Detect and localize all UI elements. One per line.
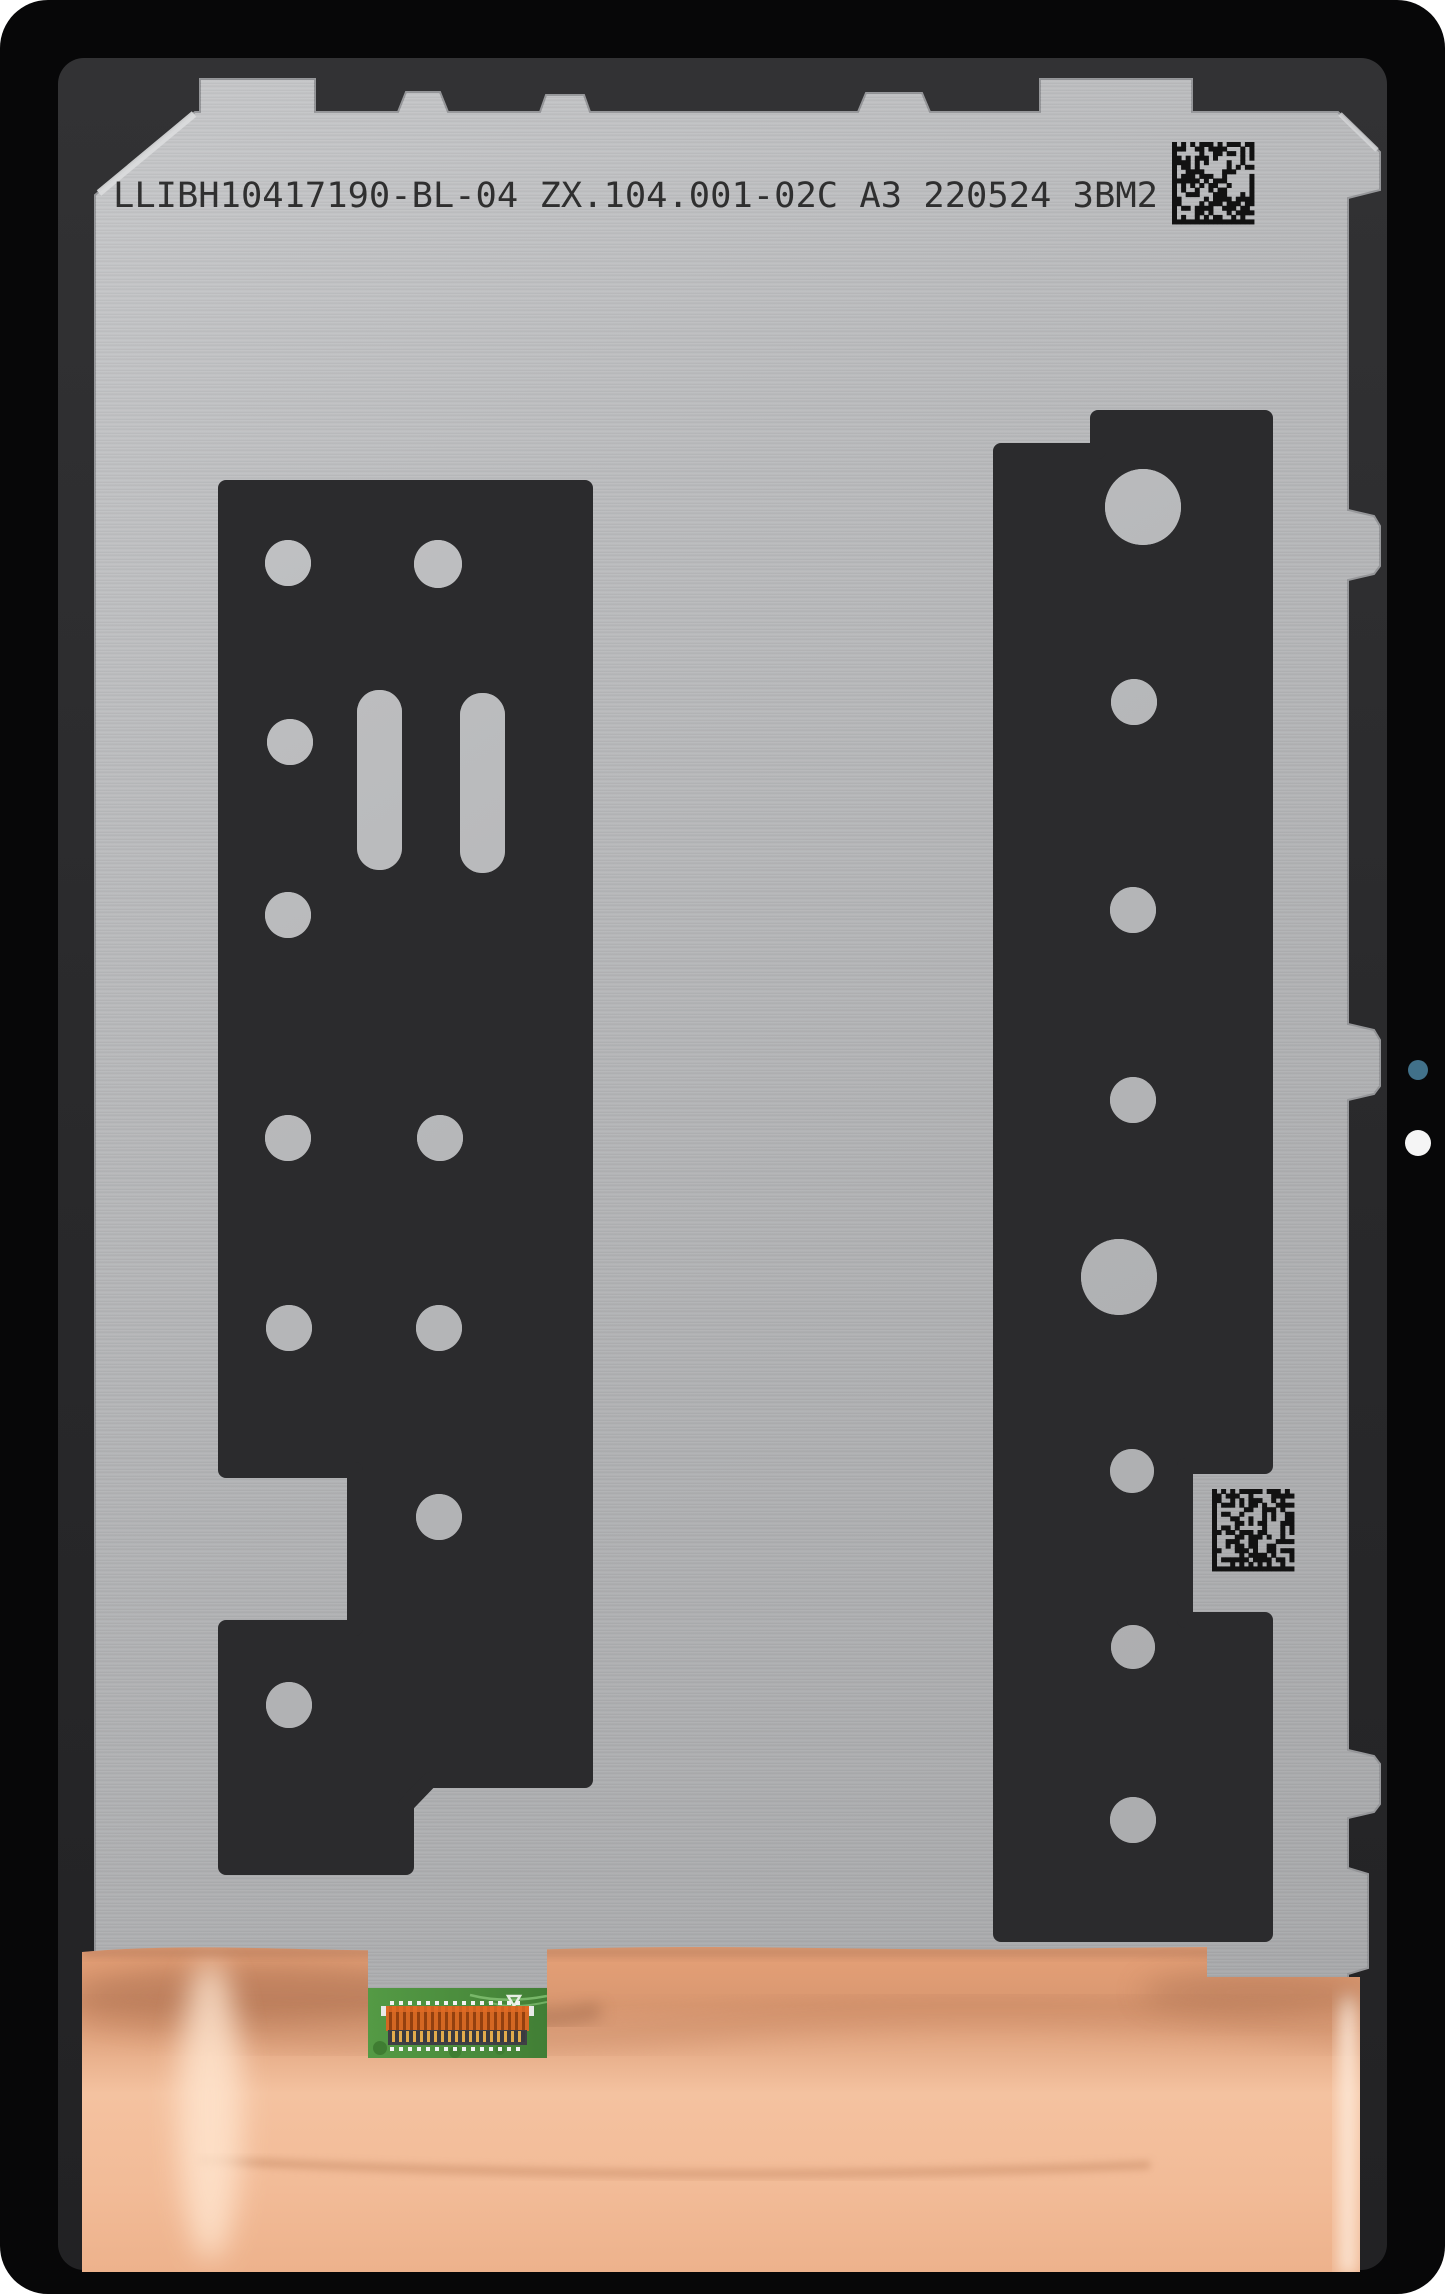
panel-marking-text: LLIBH10417190-BL-04 ZX.104.001-02C A3 22… bbox=[113, 176, 1158, 216]
white-marker-dot bbox=[1405, 1130, 1431, 1156]
lcd-assembly-rear-photo: LLIBH10417190-BL-04 ZX.104.001-02C A3 22… bbox=[0, 0, 1445, 2294]
adhesive-shape-right bbox=[1001, 418, 1265, 1934]
camera-lens-dot bbox=[1408, 1060, 1428, 1080]
adhesive-shape-left bbox=[226, 488, 585, 1867]
device-photo: LLIBH10417190-BL-04 ZX.104.001-02C A3 22… bbox=[0, 0, 1445, 2294]
fpc-connector bbox=[381, 2001, 534, 2051]
copper-foil-shield bbox=[70, 1947, 1380, 2275]
